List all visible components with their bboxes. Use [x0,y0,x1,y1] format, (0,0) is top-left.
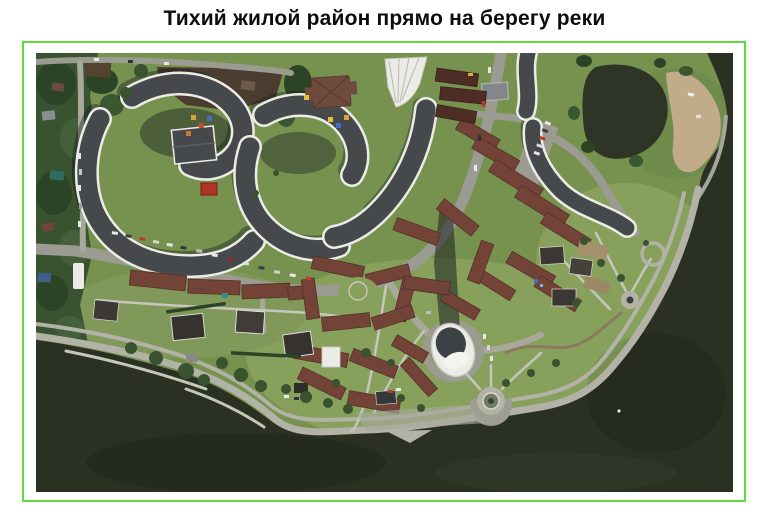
small-boat [617,409,620,412]
yellow-car [468,73,473,76]
white-van [73,263,84,289]
red-roof-building [201,183,217,195]
page-title: Тихий жилой район прямо на берегу реки [0,0,769,31]
satellite-photo [36,53,733,492]
fountain-circle [488,398,494,404]
pool-trampoline [222,293,228,298]
